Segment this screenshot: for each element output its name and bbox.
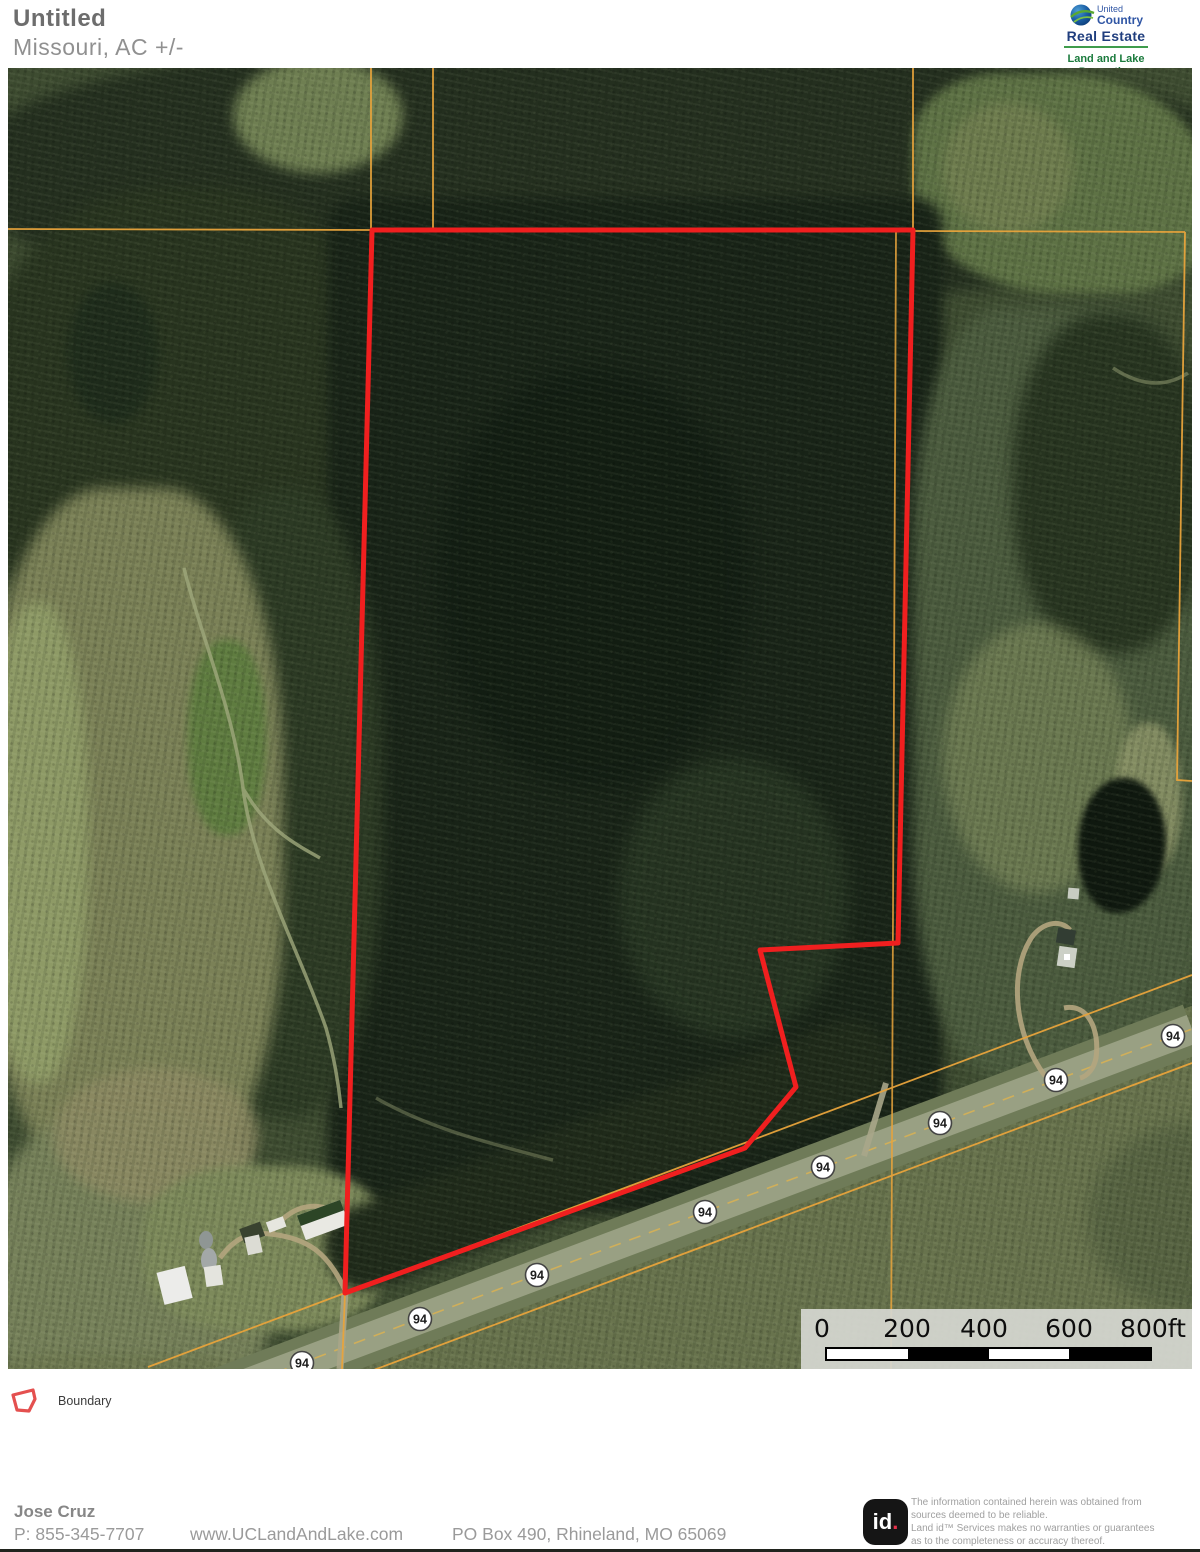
disclaimer-line: The information contained herein was obt… [911, 1496, 1193, 1509]
brand-country: Country [1097, 14, 1143, 26]
highway-94-shield: 94 [694, 1201, 717, 1224]
scale-tick-label: 800ft [1120, 1314, 1186, 1343]
agent-name: Jose Cruz [14, 1502, 95, 1522]
disclaimer-text: The information contained herein was obt… [911, 1496, 1193, 1548]
land-id-logo: id. [863, 1499, 908, 1545]
svg-text:94: 94 [698, 1206, 712, 1220]
map-report-page: Untitled Missouri, AC +/- United Country… [0, 0, 1200, 1552]
boundary-legend-icon [10, 1388, 38, 1414]
property-boundary [345, 230, 913, 1293]
agent-website: www.UCLandAndLake.com [190, 1524, 403, 1545]
svg-text:94: 94 [933, 1117, 947, 1131]
disclaimer-line: sources deemed to be reliable. [911, 1509, 1193, 1522]
disclaimer-line: Land id™ Services makes no warranties or… [911, 1522, 1193, 1535]
highway-94-shield: 94 [1162, 1025, 1185, 1048]
agent-address: PO Box 490, Rhineland, MO 65069 [452, 1524, 726, 1545]
scale-segment [1069, 1349, 1150, 1359]
brand-divider [1064, 46, 1148, 48]
svg-text:94: 94 [295, 1357, 309, 1370]
parcel-lines [8, 68, 1192, 1369]
map-legend: Boundary [10, 1388, 112, 1414]
disclaimer-line: as to the completeness or accuracy there… [911, 1535, 1193, 1548]
scale-tick-label: 600 [1045, 1314, 1093, 1343]
map-overlay: 94 94 94 94 94 94 94 94 [8, 68, 1192, 1369]
highway-94-shield: 94 [526, 1264, 549, 1287]
highway-94-shield: 94 [291, 1352, 314, 1370]
scale-bar: 0 200 400 600 800ft [801, 1309, 1192, 1369]
highway-94-shield: 94 [1045, 1069, 1068, 1092]
page-title: Untitled [13, 5, 106, 33]
united-country-logo: United Country Real Estate Land and Lake… [1060, 2, 1152, 78]
scale-segment [827, 1349, 908, 1359]
brand-tagline-1: Land and Lake [1060, 53, 1152, 66]
svg-text:94: 94 [1049, 1074, 1063, 1088]
scale-segment [989, 1349, 1070, 1359]
scale-segment [908, 1349, 989, 1359]
page-subtitle: Missouri, AC +/- [13, 34, 184, 61]
svg-text:94: 94 [1166, 1030, 1180, 1044]
highway-94-shield: 94 [929, 1112, 952, 1135]
agent-phone: P: 855-345-7707 [14, 1524, 144, 1545]
highway-94-shield: 94 [409, 1308, 432, 1331]
svg-text:94: 94 [530, 1269, 544, 1283]
highway-94-shield: 94 [812, 1156, 835, 1179]
globe-leaf-icon [1069, 2, 1095, 28]
trail-paths [184, 368, 1188, 1160]
svg-text:94: 94 [816, 1161, 830, 1175]
scale-tick-label: 200 [883, 1314, 931, 1343]
scale-bar-segments [825, 1347, 1152, 1361]
brand-division: Real Estate [1060, 29, 1152, 43]
svg-text:94: 94 [413, 1313, 427, 1327]
scale-tick-label: 400 [960, 1314, 1008, 1343]
aerial-map: 94 94 94 94 94 94 94 94 0 200 [8, 68, 1192, 1369]
boundary-legend-label: Boundary [58, 1394, 112, 1408]
scale-tick-label: 0 [814, 1314, 830, 1343]
